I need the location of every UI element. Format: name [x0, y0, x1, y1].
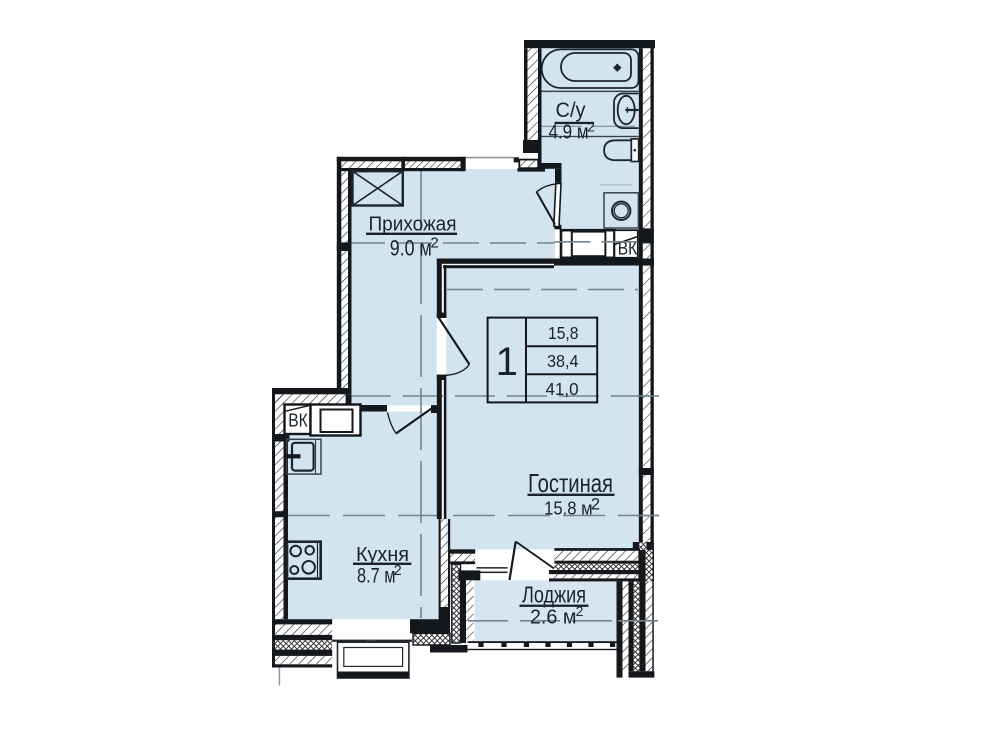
svg-text:2: 2: [430, 234, 438, 251]
svg-text:15.8 м: 15.8 м: [544, 498, 593, 519]
svg-text:2: 2: [591, 495, 600, 513]
svg-text:38,4: 38,4: [547, 351, 579, 371]
svg-text:2: 2: [394, 563, 402, 579]
svg-text:Прихожая: Прихожая: [369, 213, 457, 235]
svg-text:1: 1: [496, 340, 518, 384]
svg-text:8.7 м: 8.7 м: [357, 563, 396, 587]
svg-text:ВК: ВК: [288, 411, 308, 431]
svg-text:Гостиная: Гостиная: [528, 468, 613, 498]
svg-text:2.6 м: 2.6 м: [530, 606, 577, 629]
svg-text:2: 2: [576, 603, 584, 619]
svg-text:41,0: 41,0: [546, 379, 579, 399]
svg-text:2: 2: [587, 118, 595, 134]
svg-text:9.0 м: 9.0 м: [390, 235, 432, 260]
svg-text:15,8: 15,8: [548, 323, 579, 343]
svg-text:С/у: С/у: [556, 99, 586, 122]
svg-text:4.9 м: 4.9 м: [549, 121, 589, 144]
